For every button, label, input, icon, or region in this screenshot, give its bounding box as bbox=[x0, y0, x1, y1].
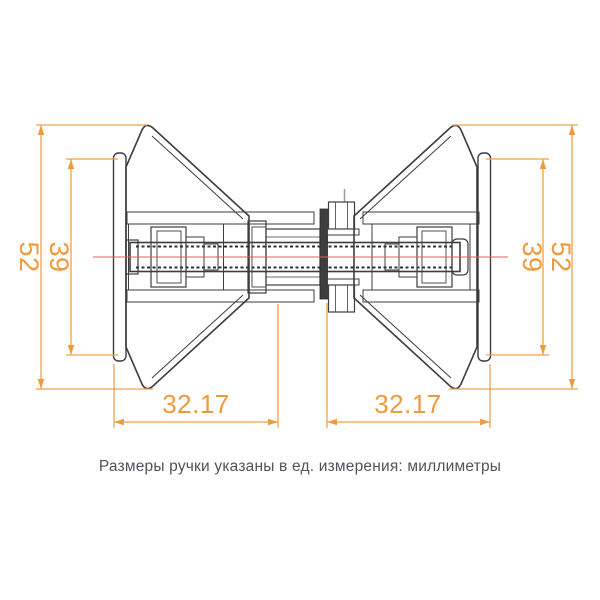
dim-label-left-39: 39 bbox=[44, 241, 74, 272]
dim-label-bottom-left: 32.17 bbox=[162, 389, 230, 419]
knob-cross-section bbox=[93, 125, 508, 388]
glass-panel-section bbox=[320, 209, 328, 299]
dim-label-bottom-right: 32.17 bbox=[374, 389, 442, 419]
units-caption: Размеры ручки указаны в ед. измерения: м… bbox=[0, 458, 600, 476]
handle-technical-drawing: 52 39 39 52 bbox=[0, 0, 600, 600]
dim-label-left-52: 52 bbox=[14, 241, 44, 272]
dimensions: 52 39 39 52 bbox=[14, 125, 578, 428]
dim-label-right-52: 52 bbox=[546, 241, 576, 272]
dimension-bottom-right-width: 32.17 bbox=[327, 303, 490, 428]
dimension-bottom-left-width: 32.17 bbox=[114, 304, 278, 428]
dim-label-right-39: 39 bbox=[517, 241, 547, 272]
